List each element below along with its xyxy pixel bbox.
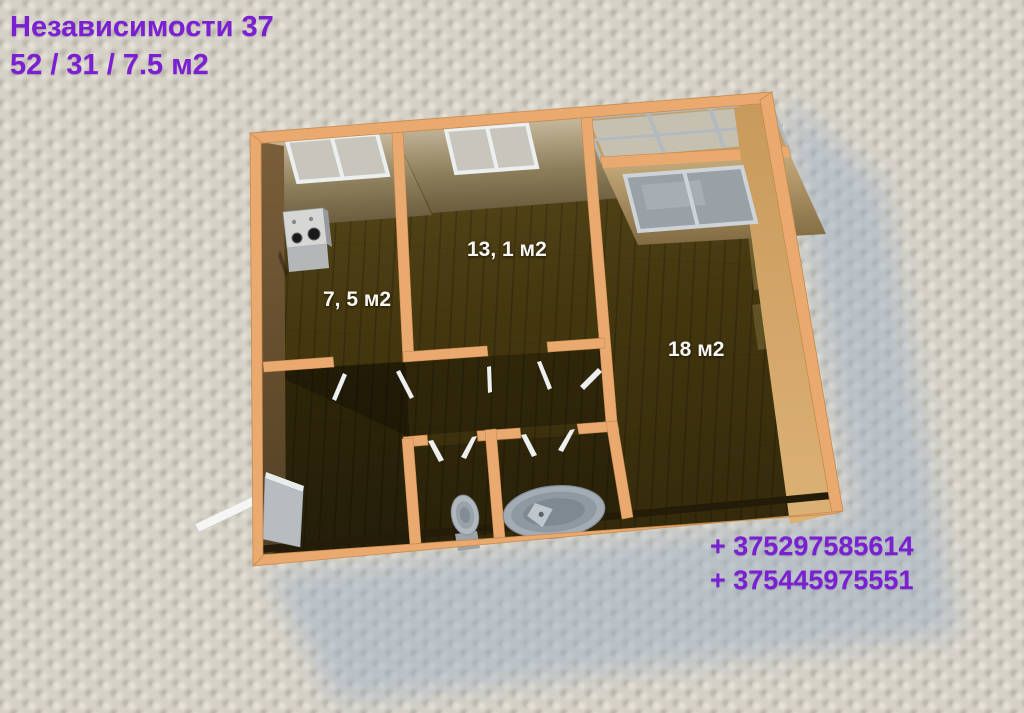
listing-header: Независимости 37 52 / 31 / 7.5 м2 [10,8,274,84]
contact-phones: + 375297585614 + 375445975551 [710,529,913,597]
entrance-door [195,472,304,547]
room-label-room18: 18 м2 [668,338,724,362]
room18-window [625,167,756,231]
room13-window [446,124,537,173]
phone-number-1: + 375297585614 [710,529,913,563]
phone-number-2: + 375445975551 [710,563,913,597]
kitchen-window [287,134,388,182]
stove [278,208,332,278]
listing-areas: 52 / 31 / 7.5 м2 [10,46,274,84]
room-label-room13: 13, 1 м2 [467,238,547,262]
floorplan-3d-render [0,0,1024,713]
listing-address: Независимости 37 [10,8,274,46]
room-label-kitchen: 7, 5 м2 [323,288,391,312]
listing-image: Независимости 37 52 / 31 / 7.5 м2 7, 5 м… [0,0,1024,713]
